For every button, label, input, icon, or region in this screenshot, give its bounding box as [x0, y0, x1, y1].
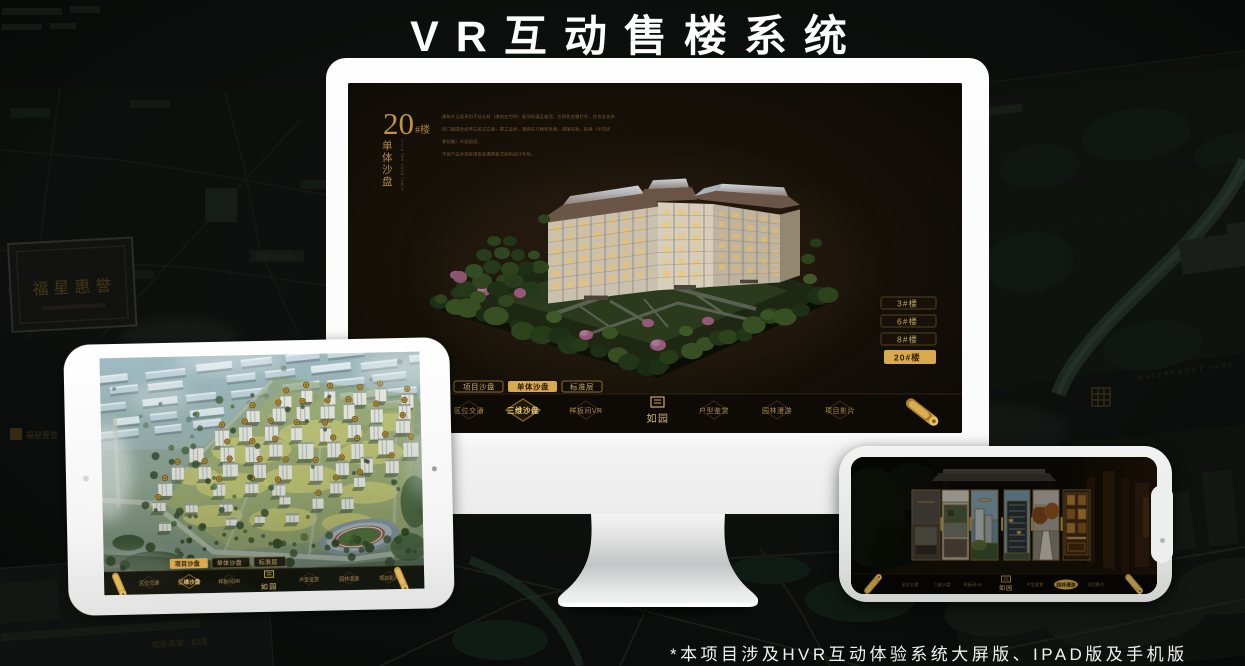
- svg-text:样板间VR: 样板间VR: [218, 578, 240, 585]
- svg-text:如园: 如园: [647, 412, 670, 425]
- svg-text:区位交通: 区位交通: [139, 580, 159, 587]
- svg-text:景拍摄）环绕组团。: 景拍摄）环绕组团。: [442, 138, 482, 145]
- svg-text:3#楼: 3#楼: [897, 299, 918, 309]
- svg-text:项目沙盘: 项目沙盘: [463, 382, 495, 392]
- svg-text:纹门窗围合经典三段式立面，精工品质，演绎东方建筑风骨，错落有: 纹门窗围合经典三段式立面，精工品质，演绎东方建筑风骨，错落有致，街巷（示范区: [442, 126, 611, 133]
- svg-text:VILLA THE SAND TABLE: VILLA THE SAND TABLE: [400, 139, 404, 191]
- svg-text:20#楼: 20#楼: [894, 353, 921, 363]
- svg-text:园林漫游: 园林漫游: [339, 575, 359, 582]
- svg-text:项目影片: 项目影片: [825, 406, 855, 415]
- svg-text:如园: 如园: [261, 582, 278, 591]
- svg-text:样板间VR: 样板间VR: [569, 406, 602, 415]
- svg-text:8#楼: 8#楼: [897, 335, 918, 345]
- svg-text:户型鉴赏: 户型鉴赏: [299, 576, 319, 583]
- svg-text:园林漫游: 园林漫游: [762, 406, 792, 415]
- svg-text:沙: 沙: [382, 164, 393, 176]
- svg-text:洋房产品全部采用南北通透板式结构设计布局。: 洋房产品全部采用南北通透板式结构设计布局。: [442, 151, 535, 158]
- svg-text:西城快速路: 西城快速路: [18, 110, 48, 118]
- svg-text:户型鉴赏: 户型鉴赏: [699, 406, 729, 415]
- svg-text:单体沙盘: 单体沙盘: [517, 382, 549, 392]
- svg-text:建筑外立面采用干挂石材（璞悦台为例）屋顶琉璃瓦坡顶，古铜色金: 建筑外立面采用干挂石材（璞悦台为例）屋顶琉璃瓦坡顶，古铜色金属栏杆，铝合金仿木: [442, 113, 616, 120]
- svg-text:盘: 盘: [382, 175, 393, 188]
- svg-text:标准层: 标准层: [570, 382, 594, 392]
- svg-text:三维沙盘: 三维沙盘: [507, 405, 539, 415]
- svg-text:#楼: #楼: [415, 123, 430, 136]
- svg-text:体: 体: [382, 152, 393, 164]
- svg-text:6#楼: 6#楼: [897, 317, 918, 327]
- svg-text:福星惠誉·如园: 福星惠誉·如园: [256, 253, 294, 261]
- svg-text:20: 20: [383, 106, 414, 141]
- svg-text:单: 单: [382, 140, 393, 152]
- svg-text:福星惠誉: 福星惠誉: [26, 430, 58, 440]
- svg-text:区位交通: 区位交通: [454, 406, 484, 415]
